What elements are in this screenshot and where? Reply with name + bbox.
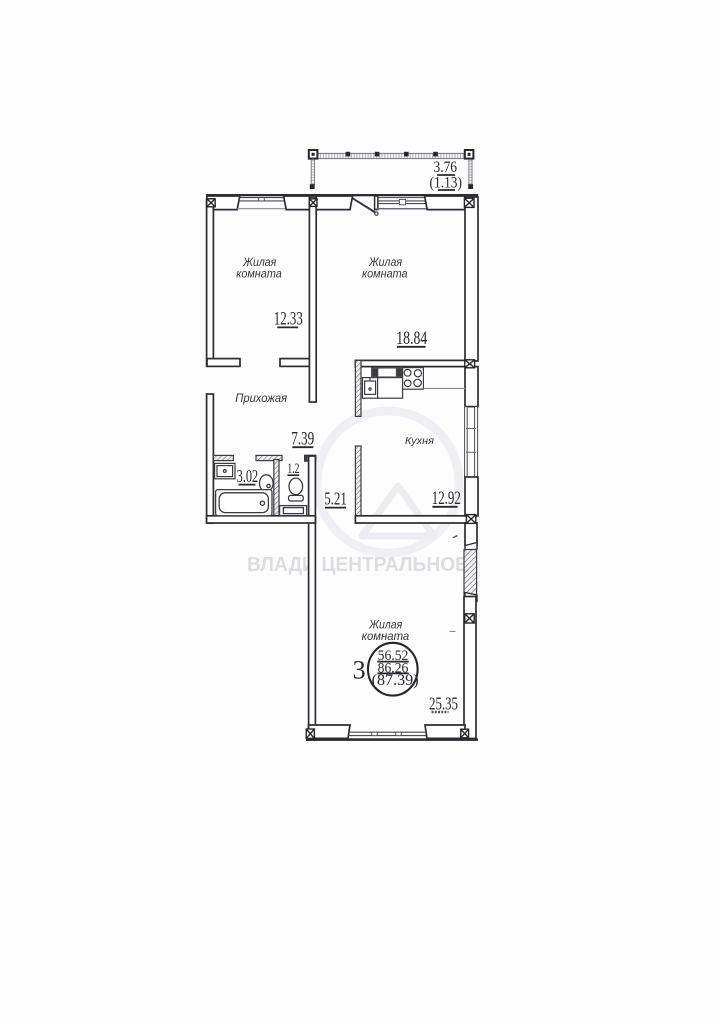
svg-text:(1.13): (1.13) <box>430 175 463 192</box>
svg-text:Прихожая: Прихожая <box>235 393 287 405</box>
svg-text:Жилая: Жилая <box>242 257 276 269</box>
svg-text:3.02: 3.02 <box>237 466 259 486</box>
svg-text:комната: комната <box>362 269 408 281</box>
svg-text:3: 3 <box>353 655 366 684</box>
svg-text:1.2: 1.2 <box>287 461 299 477</box>
svg-text:5.21: 5.21 <box>324 489 347 509</box>
svg-text:Кухня: Кухня <box>405 435 434 447</box>
svg-text:Жилая: Жилая <box>368 257 402 269</box>
svg-text:ВЛАДИ ЦЕНТРАЛЬНОЕ: ВЛАДИ ЦЕНТРАЛЬНОЕ <box>247 554 468 576</box>
svg-text:25.35: 25.35 <box>429 694 458 714</box>
svg-text:комната: комната <box>236 269 282 281</box>
svg-text:комната: комната <box>362 631 410 643</box>
svg-text:Жилая: Жилая <box>368 619 402 631</box>
svg-text:(87.39): (87.39) <box>372 672 419 689</box>
